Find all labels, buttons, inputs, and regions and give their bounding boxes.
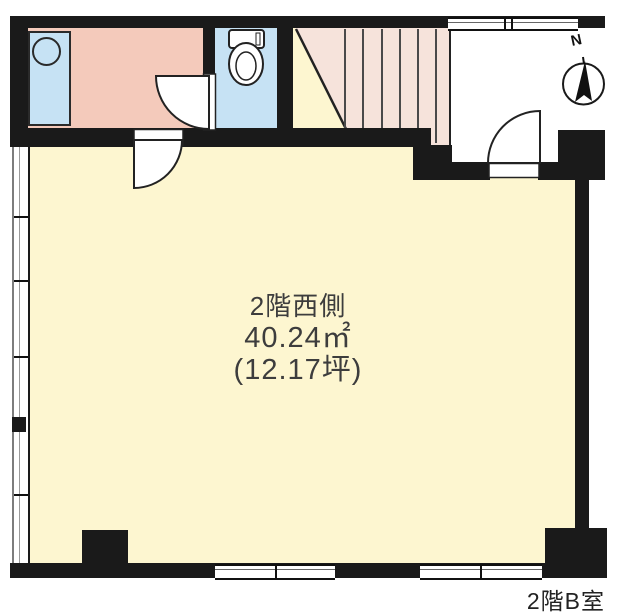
floorplan-page: { "floorplan": { "room_label": ["2階西側", … <box>0 0 640 616</box>
toilet-icon <box>229 30 264 85</box>
unit-label: 2階B室 <box>450 582 605 616</box>
room-area-label: 2階西側 40.24㎡ (12.17坪) <box>140 291 456 386</box>
toilet-door-swing-icon <box>156 76 209 129</box>
room-area-tsubo-text: (12.17坪) <box>140 354 456 386</box>
compass-icon <box>563 57 604 105</box>
room-name-text: 2階西側 <box>140 291 456 322</box>
washroom-door-swing-icon <box>134 140 182 188</box>
entry-door-leaf <box>489 164 539 178</box>
room-area-sqm-text: 40.24㎡ <box>140 322 456 354</box>
entry-door-swing-icon <box>488 111 540 163</box>
